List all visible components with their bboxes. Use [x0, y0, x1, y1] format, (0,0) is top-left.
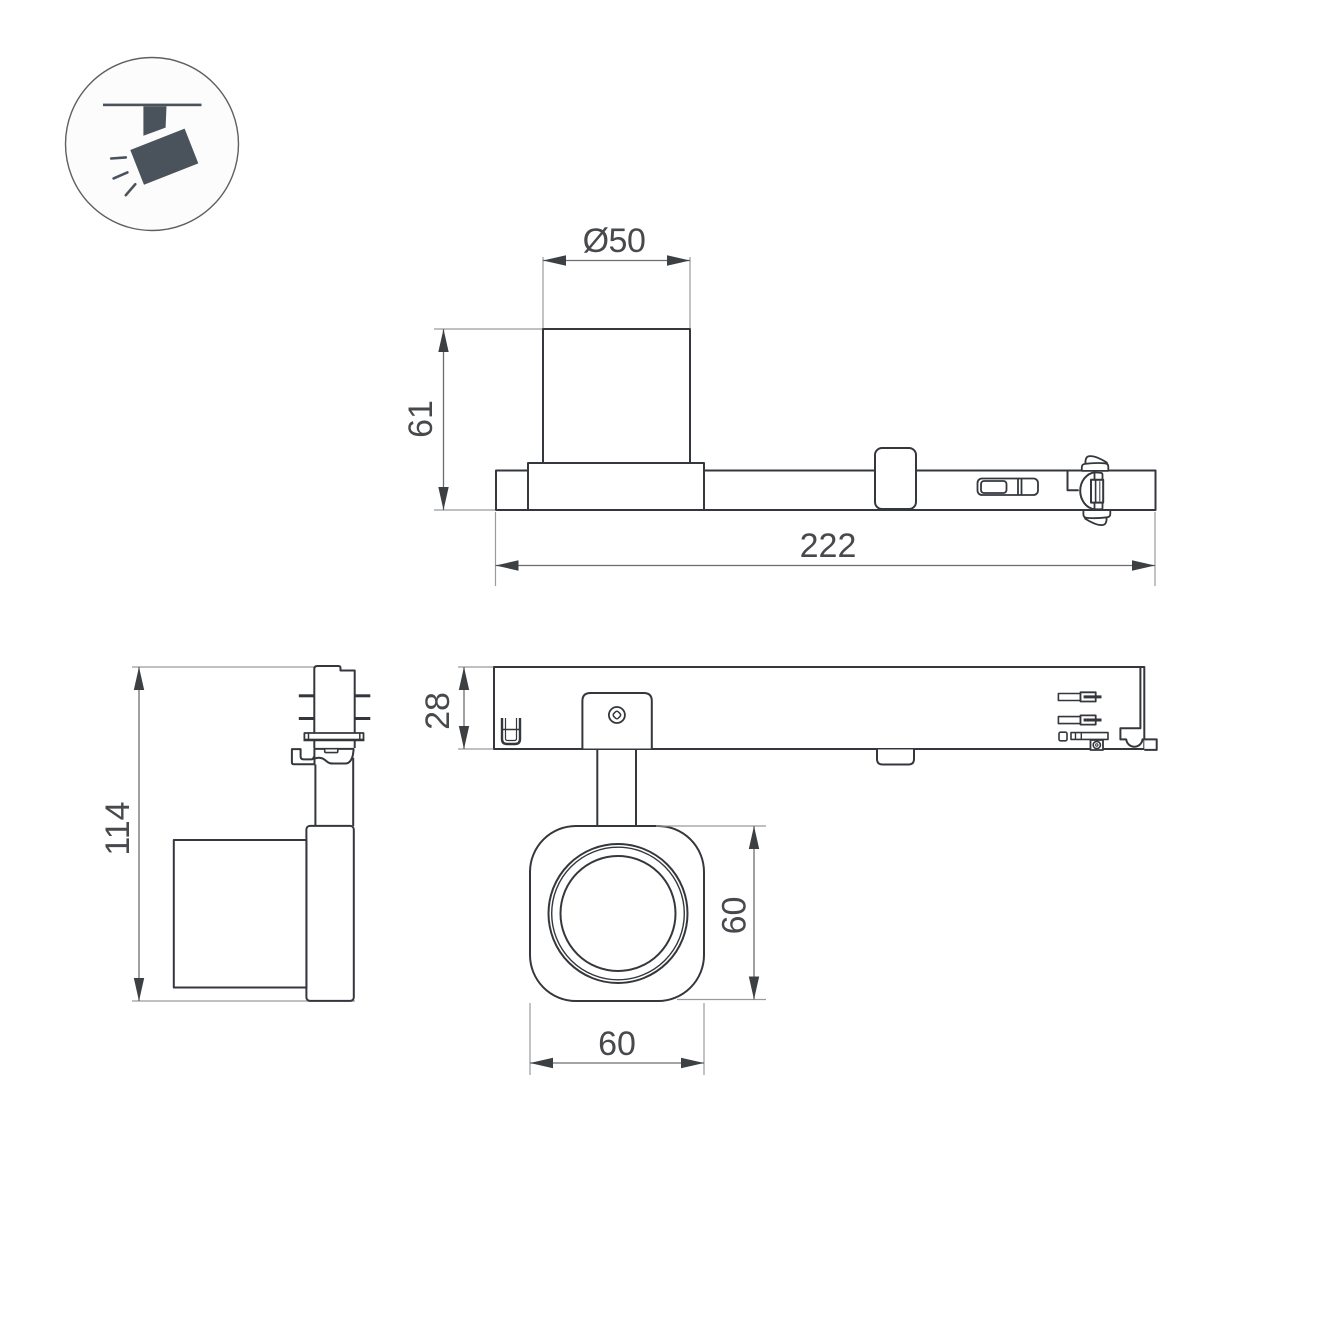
- svg-text:61: 61: [402, 400, 440, 438]
- svg-text:114: 114: [99, 801, 137, 855]
- svg-text:60: 60: [598, 1025, 636, 1063]
- svg-text:28: 28: [419, 692, 457, 730]
- svg-text:Ø50: Ø50: [583, 222, 646, 260]
- svg-text:60: 60: [716, 897, 754, 935]
- svg-text:222: 222: [800, 527, 857, 565]
